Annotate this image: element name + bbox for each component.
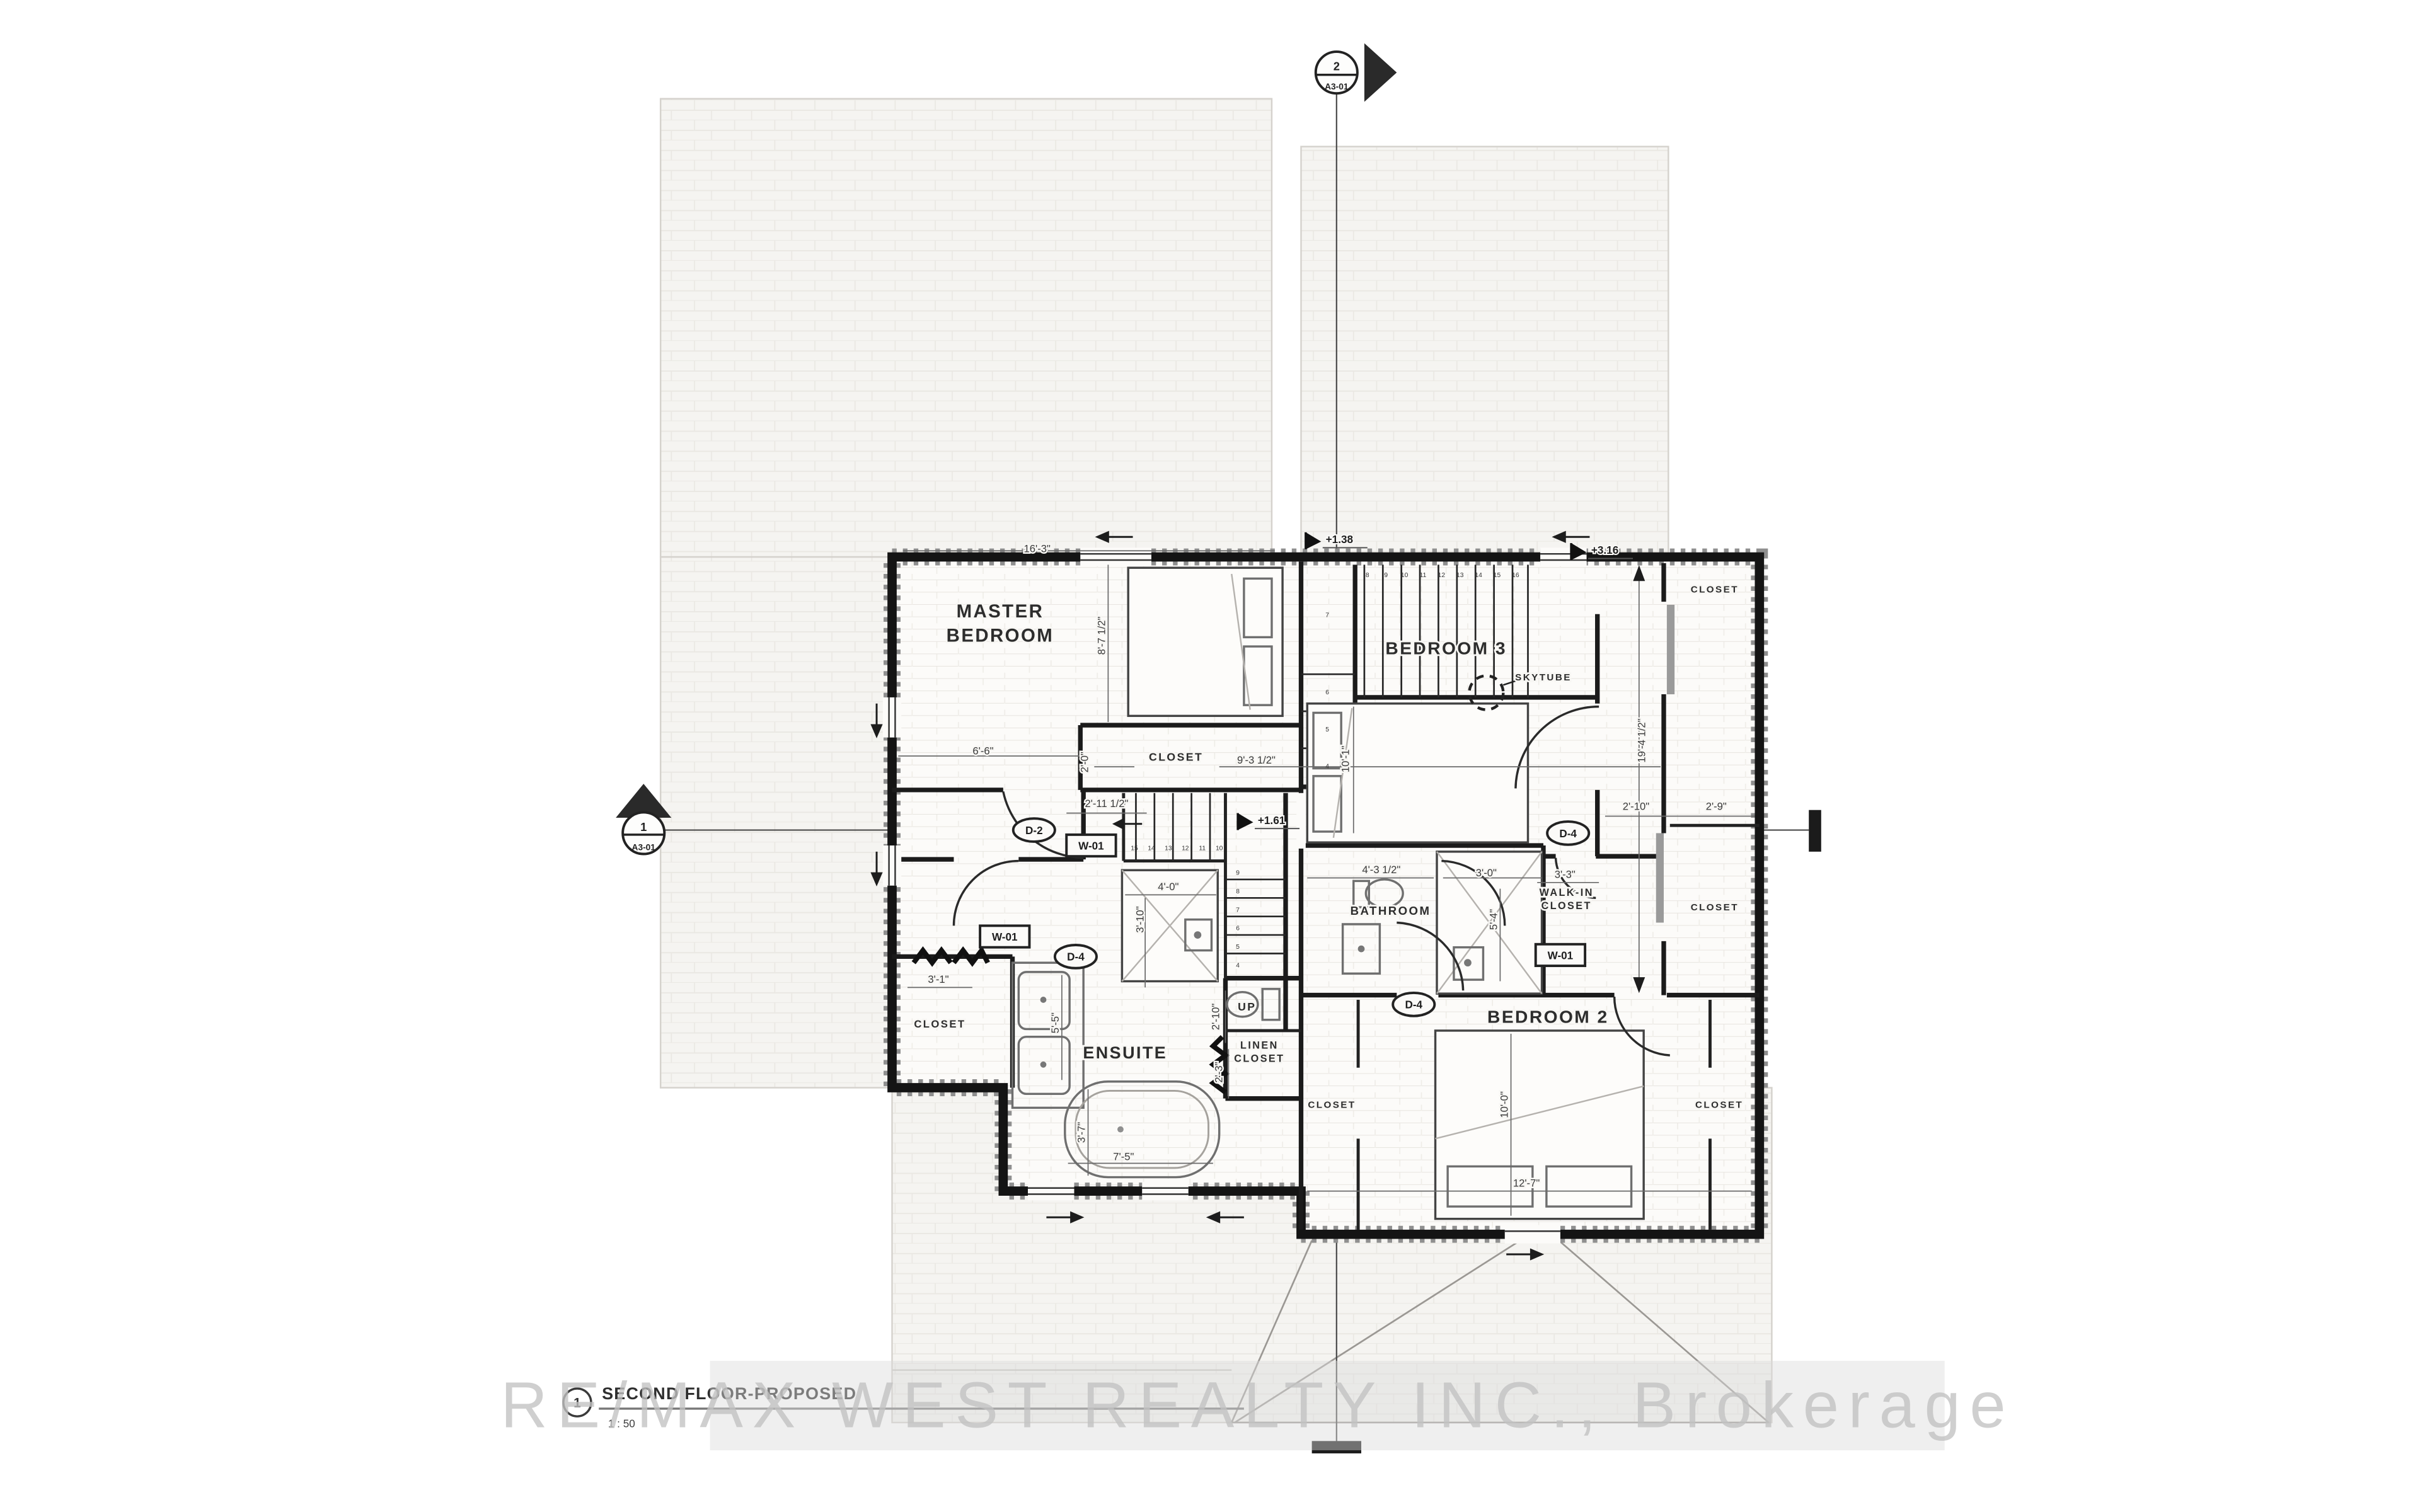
dimension-label: 3'-7" xyxy=(1076,1122,1088,1143)
stair-number: 7 xyxy=(1236,907,1240,913)
room-label-closet-bedroom2-left: CLOSET xyxy=(1308,1099,1356,1110)
room-label-closet-bedroom2-right: CLOSET xyxy=(1695,1099,1743,1110)
dimension-label: 8'-7 1/2" xyxy=(1095,616,1107,655)
bed-master xyxy=(1128,568,1282,716)
sliding-door-panel-2 xyxy=(1656,833,1664,922)
stair-number: 15 xyxy=(1494,572,1501,579)
stair-number: 12 xyxy=(1438,572,1446,579)
opening-corridor xyxy=(1296,793,1306,849)
roof-area-left xyxy=(660,557,892,1087)
section-marker-top-sheet: A3-01 xyxy=(1325,82,1349,91)
window-tag-label: W-01 xyxy=(1548,949,1574,961)
window-left-2 xyxy=(883,845,901,886)
stair-number: 4 xyxy=(1236,963,1240,970)
dimension-label: 19'-4 1/2" xyxy=(1636,718,1648,762)
dimension-label: 2'-0" xyxy=(1079,752,1091,772)
dimension-label: 10'-0" xyxy=(1499,1091,1511,1118)
dimension-label: 4'-0" xyxy=(1158,881,1178,893)
window-tag-label: W-01 xyxy=(992,931,1018,943)
stair-number: 16 xyxy=(1512,572,1519,579)
window-ensuite-2 xyxy=(1142,1182,1188,1200)
floor-plan-page: MASTERBEDROOMBEDROOM 3BEDROOM 2ENSUITEBA… xyxy=(0,0,2420,1512)
door-tag-label: D-4 xyxy=(1559,827,1577,840)
stair-number: 5 xyxy=(1325,726,1329,733)
door-tag-d-4: D-4 xyxy=(1055,945,1097,968)
door-tag-d-2: D-2 xyxy=(1013,818,1055,842)
dimension-label: 6'-6" xyxy=(972,745,993,757)
stair-number: 14 xyxy=(1475,572,1482,579)
roof-area-top-right xyxy=(1301,147,1668,557)
dimension-label: 9'-3 1/2" xyxy=(1237,754,1276,766)
section-marker-top-number: 2 xyxy=(1334,59,1340,72)
dimension-label: 3'-0" xyxy=(1476,867,1497,879)
dimension-label: 2'-9" xyxy=(1706,801,1727,813)
room-label-bathroom: BATHROOM xyxy=(1351,904,1431,917)
stair-number: 10 xyxy=(1401,572,1409,579)
stair-number: 6 xyxy=(1236,925,1240,932)
dimension-label: 2'-3" xyxy=(1213,1062,1225,1082)
dimension-label: 3'-1" xyxy=(928,973,948,985)
elevation-label: +3.16 xyxy=(1591,544,1618,556)
window-ensuite-1 xyxy=(1028,1182,1074,1200)
dimension-label: 5'-4" xyxy=(1488,909,1500,930)
window-left-1 xyxy=(883,697,901,738)
door-tag-label: D-4 xyxy=(1405,999,1422,1011)
section-marker-left-number: 1 xyxy=(640,820,647,833)
floor-plan-drawing: MASTERBEDROOMBEDROOM 3BEDROOM 2ENSUITEBA… xyxy=(0,0,2420,1512)
room-label-closet-right-top: CLOSET xyxy=(1691,584,1739,595)
elevation-label: +1.61 xyxy=(1258,814,1286,827)
door-tag-label: D-4 xyxy=(1067,951,1085,963)
roof-area-top-left xyxy=(660,99,1272,557)
stair-number: 11 xyxy=(1199,845,1206,852)
window-tag-label: W-01 xyxy=(1078,839,1104,852)
door-bedroom2-opening xyxy=(1505,1225,1560,1243)
door-tag-label: D-2 xyxy=(1025,824,1043,837)
window-tag-w-01: W-01 xyxy=(1066,835,1115,856)
stair-number: 11 xyxy=(1420,572,1427,579)
dimension-label: 4'-3 1/2" xyxy=(1362,864,1400,876)
room-label-ensuite: ENSUITE xyxy=(1083,1043,1167,1062)
room-label-skytube: SKYTUBE xyxy=(1515,672,1572,683)
dimension-label: 2'-10" xyxy=(1623,801,1649,813)
stair-number: 9 xyxy=(1236,870,1240,877)
bed-bedroom3 xyxy=(1307,704,1528,842)
dimension-label: 7'-5" xyxy=(1113,1151,1134,1163)
door-tag-d-4: D-4 xyxy=(1547,822,1589,845)
stair-number: 8 xyxy=(1366,572,1369,579)
dimension-label: 16'-3" xyxy=(1024,543,1051,555)
stair-number: 12 xyxy=(1182,845,1189,852)
section-line-end-right xyxy=(1809,810,1821,852)
section-marker-left-sheet: A3-01 xyxy=(632,842,656,852)
stair-number: 8 xyxy=(1236,888,1240,895)
stair-number: 14 xyxy=(1148,845,1155,852)
elevation-label: +1.38 xyxy=(1326,533,1353,546)
room-label-closet-right-mid: CLOSET xyxy=(1691,902,1739,913)
room-label-closet-master: CLOSET xyxy=(1149,750,1203,763)
room-label-up: UP xyxy=(1238,1000,1256,1013)
room-label-bedroom-3: BEDROOM 3 xyxy=(1385,638,1507,658)
section-marker-top: 2 A3-01 xyxy=(1316,43,1397,102)
stair-number: 7 xyxy=(1325,612,1329,619)
watermark: RE/MAX WEST REALTY INC., Brokerage xyxy=(501,1361,2015,1450)
dimension-label: 2'-11 1/2" xyxy=(1085,798,1128,810)
dimension-label: 10'-1" xyxy=(1339,746,1351,772)
room-label-closet-ensuite: CLOSET xyxy=(914,1018,965,1030)
stair-number: 4 xyxy=(1325,764,1329,770)
room-label-bedroom-2: BEDROOM 2 xyxy=(1487,1007,1609,1027)
stair-number: 15 xyxy=(1131,845,1138,852)
dimension-label: 2'-10" xyxy=(1210,1004,1222,1030)
door-tag-d-4: D-4 xyxy=(1393,993,1434,1016)
dimension-label: 12'-7" xyxy=(1513,1177,1540,1189)
stair-number: 13 xyxy=(1165,845,1172,852)
window-tag-w-01: W-01 xyxy=(1536,944,1585,966)
dimension-label: 3'-10" xyxy=(1134,906,1146,932)
stair-number: 5 xyxy=(1236,944,1240,951)
stair-number: 6 xyxy=(1325,689,1329,696)
stair-number: 13 xyxy=(1456,572,1464,579)
dimension-label: 3'-3" xyxy=(1555,868,1576,880)
watermark-text: RE/MAX WEST REALTY INC., Brokerage xyxy=(501,1368,2015,1441)
dimension-label: 5'-5" xyxy=(1049,1012,1061,1033)
sliding-door-panel-1 xyxy=(1667,605,1674,694)
window-tag-w-01: W-01 xyxy=(980,925,1029,947)
stair-number: 9 xyxy=(1384,572,1388,579)
stair-number: 10 xyxy=(1216,845,1223,852)
